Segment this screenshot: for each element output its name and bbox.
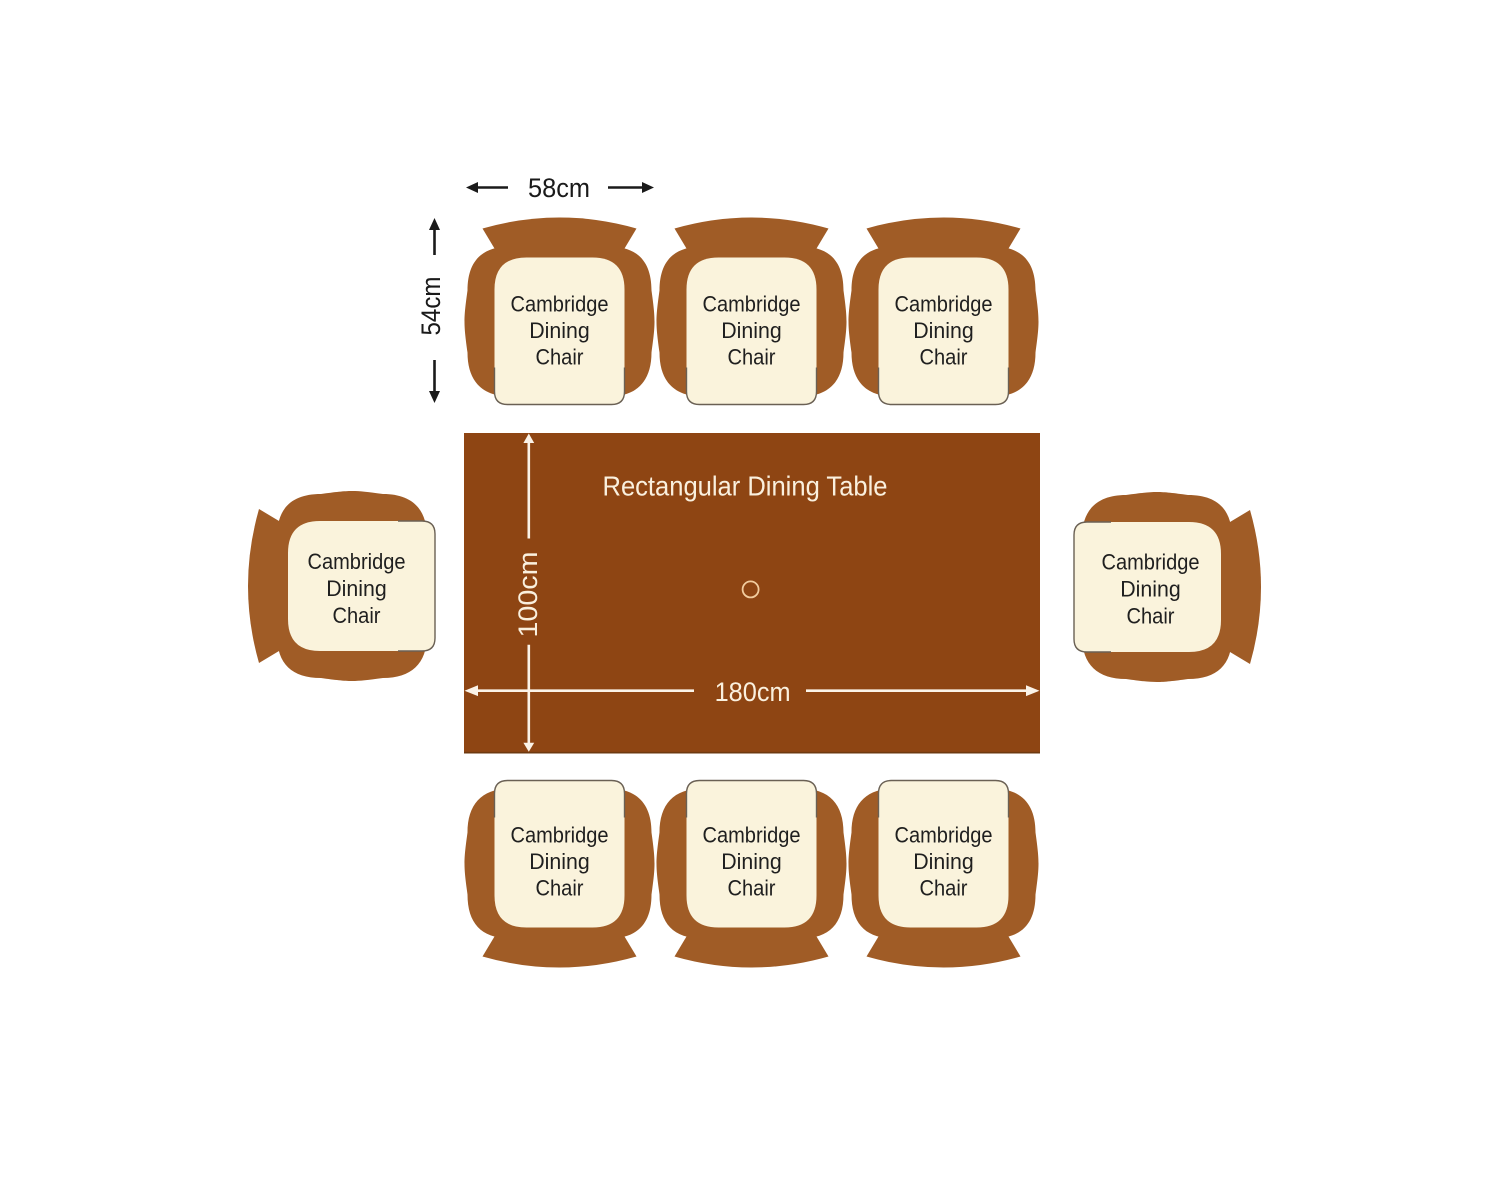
- svg-text:Chair: Chair: [333, 603, 381, 628]
- svg-text:Cambridge: Cambridge: [511, 823, 609, 848]
- svg-text:Dining: Dining: [529, 318, 590, 343]
- svg-text:Chair: Chair: [1127, 604, 1175, 629]
- svg-text:Chair: Chair: [920, 876, 968, 901]
- svg-text:Cambridge: Cambridge: [1102, 550, 1200, 575]
- svg-text:Cambridge: Cambridge: [511, 292, 609, 317]
- svg-text:Cambridge: Cambridge: [308, 549, 406, 574]
- svg-text:Chair: Chair: [536, 876, 584, 901]
- svg-text:58cm: 58cm: [528, 173, 590, 203]
- svg-text:Chair: Chair: [728, 876, 776, 901]
- svg-text:100cm: 100cm: [513, 552, 543, 638]
- svg-text:Dining: Dining: [913, 318, 974, 343]
- svg-text:Chair: Chair: [536, 345, 584, 370]
- svg-text:Cambridge: Cambridge: [703, 292, 801, 317]
- svg-text:Dining: Dining: [721, 849, 782, 874]
- svg-text:Dining: Dining: [529, 849, 590, 874]
- svg-text:Cambridge: Cambridge: [895, 823, 993, 848]
- svg-text:Dining: Dining: [326, 576, 387, 601]
- svg-text:Dining: Dining: [1120, 577, 1181, 602]
- svg-text:Dining: Dining: [721, 318, 782, 343]
- svg-text:Chair: Chair: [728, 345, 776, 370]
- svg-text:Chair: Chair: [920, 345, 968, 370]
- svg-text:54cm: 54cm: [416, 277, 446, 336]
- svg-text:Rectangular Dining Table: Rectangular Dining Table: [603, 471, 888, 502]
- svg-text:Dining: Dining: [913, 849, 974, 874]
- svg-text:Cambridge: Cambridge: [895, 292, 993, 317]
- svg-text:Cambridge: Cambridge: [703, 823, 801, 848]
- svg-text:180cm: 180cm: [715, 677, 791, 707]
